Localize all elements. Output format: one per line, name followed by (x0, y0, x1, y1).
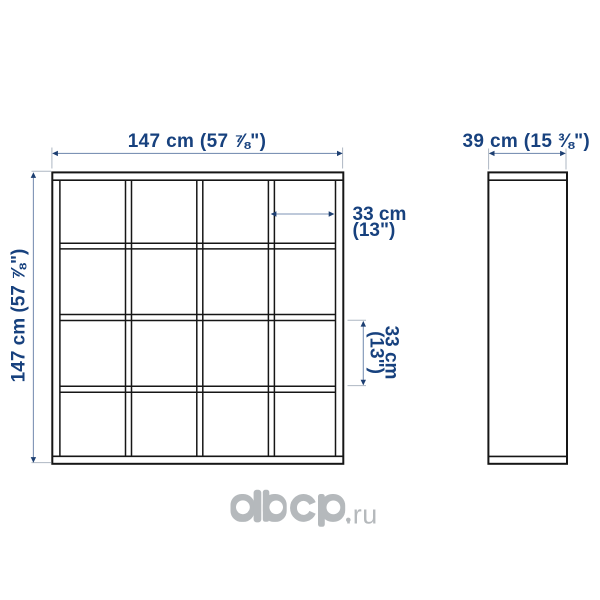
svg-text:.ru: .ru (345, 499, 378, 529)
svg-text:(13"): (13") (365, 331, 386, 374)
svg-text:(13"): (13") (353, 220, 396, 241)
svg-text:39 cm (15 ⅜"): 39 cm (15 ⅜") (462, 131, 590, 152)
svg-text:147 cm (57 ⅞"): 147 cm (57 ⅞") (9, 249, 30, 383)
svg-text:147 cm (57 ⅞"): 147 cm (57 ⅞") (128, 131, 267, 152)
